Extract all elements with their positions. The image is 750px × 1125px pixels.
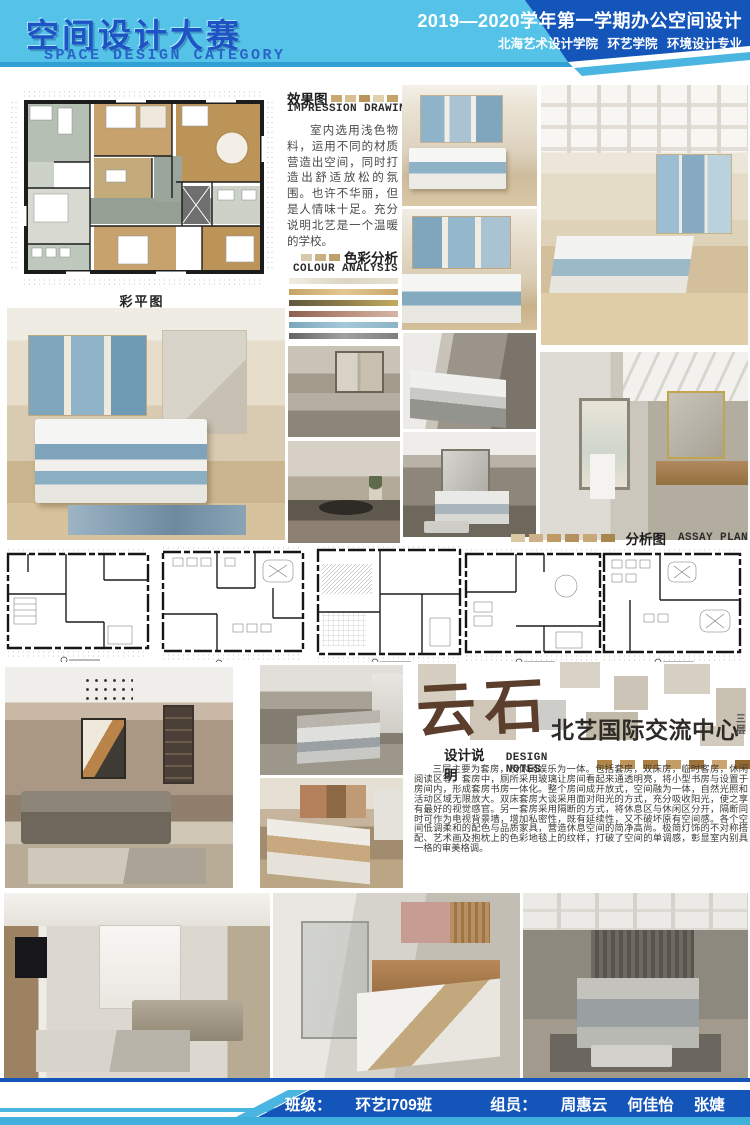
cad-floor-plans-row xyxy=(0,546,750,662)
bed xyxy=(297,710,380,764)
photo-living-room-chandelier xyxy=(5,667,233,888)
plant xyxy=(369,476,382,500)
bench xyxy=(591,1045,672,1067)
television xyxy=(15,937,47,978)
swatch xyxy=(331,95,342,102)
window xyxy=(100,926,180,1007)
photo-gray-bedroom-corner xyxy=(288,346,400,437)
photo-twin-bedroom-blue-art xyxy=(402,85,537,206)
sofa xyxy=(21,791,171,844)
bed xyxy=(267,819,370,885)
coffered-ceiling xyxy=(523,893,748,930)
assay-label-cn: 分析图 xyxy=(625,528,666,548)
artwork xyxy=(29,336,146,415)
colour-bar-olive xyxy=(289,300,398,306)
photo-gray-bedroom xyxy=(260,665,403,775)
photo-main-twin-bedroom xyxy=(7,308,285,540)
photo-tv-living-room xyxy=(4,893,270,1078)
bed xyxy=(402,274,521,322)
colour-bar-gray xyxy=(289,333,398,339)
gold-framed-mirror xyxy=(669,393,723,457)
members-label: 组员： xyxy=(490,1093,537,1115)
swatch xyxy=(329,254,340,261)
bed xyxy=(410,370,506,428)
vanity-counter xyxy=(656,461,748,485)
swatch xyxy=(529,534,543,542)
school-name: 北海艺术设计学院 环艺学院 环境设计专业 xyxy=(498,33,742,52)
logo-deco-square xyxy=(664,664,710,694)
member-name: 何佳怡 xyxy=(627,1093,674,1115)
frames xyxy=(337,353,382,391)
colour-bar-mauve xyxy=(289,311,398,317)
assay-label-row: 分析图 ASSAY PLAN xyxy=(390,528,748,548)
member-name: 周惠云 xyxy=(561,1093,608,1115)
photo-tan-bedroom xyxy=(260,778,403,888)
artwork xyxy=(413,217,510,268)
window xyxy=(374,789,403,840)
rug xyxy=(68,505,246,535)
chandelier xyxy=(83,676,133,703)
design-notes-body: 三层主要为套房，及休闲娱乐为一体。包括套房，双床房，临时客房，休闲阅读区等。套房… xyxy=(414,765,748,854)
bed xyxy=(409,148,506,189)
colour-bar-tan xyxy=(289,289,398,295)
artwork xyxy=(83,720,124,777)
swatch xyxy=(511,534,525,542)
bed xyxy=(435,491,509,525)
headboard-panel xyxy=(300,785,366,818)
mirror xyxy=(443,451,488,493)
photo-glass-shower-bedroom xyxy=(273,893,520,1078)
poster: 空间设计大赛 SPACE DESIGN CATEGORY 2019—2020学年… xyxy=(0,0,750,1125)
photo-bedroom-mirror-bench xyxy=(403,432,536,537)
colour-bar-cream xyxy=(289,278,398,284)
display-shelf xyxy=(165,707,192,782)
project-title: 北艺国际交流中心 xyxy=(551,711,739,745)
swatch xyxy=(345,95,356,102)
artwork xyxy=(421,96,502,142)
bed xyxy=(288,393,400,437)
course-title: 2019—2020学年第一学期办公空间设计 xyxy=(417,7,742,33)
colour-label-en: COLOUR ANALYSIS xyxy=(287,263,398,275)
class-value: 环艺I709班 xyxy=(356,1093,433,1115)
bed xyxy=(549,236,694,293)
swatch xyxy=(565,534,579,542)
logo-deco-square xyxy=(614,676,648,710)
photo-long-suite-room xyxy=(541,85,748,345)
brand-logo: 云石 xyxy=(414,657,554,751)
member-name: 张婕 xyxy=(694,1093,725,1115)
page-subtitle: SPACE DESIGN CATEGORY xyxy=(44,47,286,64)
bed xyxy=(577,978,699,1048)
artwork xyxy=(657,155,732,233)
class-label: 班级： xyxy=(285,1093,332,1115)
swatch xyxy=(583,534,597,542)
logo-deco-square xyxy=(560,662,600,688)
colour-bar-blue xyxy=(289,322,398,328)
swatch xyxy=(601,534,615,542)
assay-label-en: ASSAY PLAN xyxy=(678,532,748,544)
swatch xyxy=(301,254,312,261)
bed xyxy=(35,419,207,503)
swatch xyxy=(547,534,561,542)
slat-panel xyxy=(401,902,490,943)
swatch xyxy=(315,254,326,261)
coffered-ceiling xyxy=(541,85,748,153)
impression-label-en: IMPRESSION DRAWING xyxy=(287,103,413,115)
photo-bathroom-vanity-window xyxy=(540,352,748,540)
feature-wall xyxy=(163,331,246,433)
coloured-floor-plan xyxy=(6,86,278,290)
swatch xyxy=(373,95,384,102)
photo-gray-bed-wardrobe xyxy=(403,333,536,429)
rug xyxy=(28,848,206,883)
impression-body: 室内选用浅色物料，运用不同的材质营造出空间，同时打造出舒适放松的氛围。也许不华丽… xyxy=(287,124,398,250)
ceiling xyxy=(4,893,270,926)
photo-slat-wall-bedroom xyxy=(523,893,748,1078)
footer-credits: 班级： 环艺I709班 组员： 周惠云 何佳怡 张婕 xyxy=(285,1091,747,1116)
photo-lounge-coffee-table xyxy=(288,441,400,543)
bed xyxy=(357,978,500,1071)
towel-rack xyxy=(590,454,615,499)
floor-tag: 三层 xyxy=(736,714,747,737)
swatch xyxy=(359,95,370,102)
swatch xyxy=(387,95,398,102)
photo-bedroom-closeup-blue-art xyxy=(402,209,537,330)
coffee-table xyxy=(319,500,373,515)
rug xyxy=(36,1030,190,1073)
